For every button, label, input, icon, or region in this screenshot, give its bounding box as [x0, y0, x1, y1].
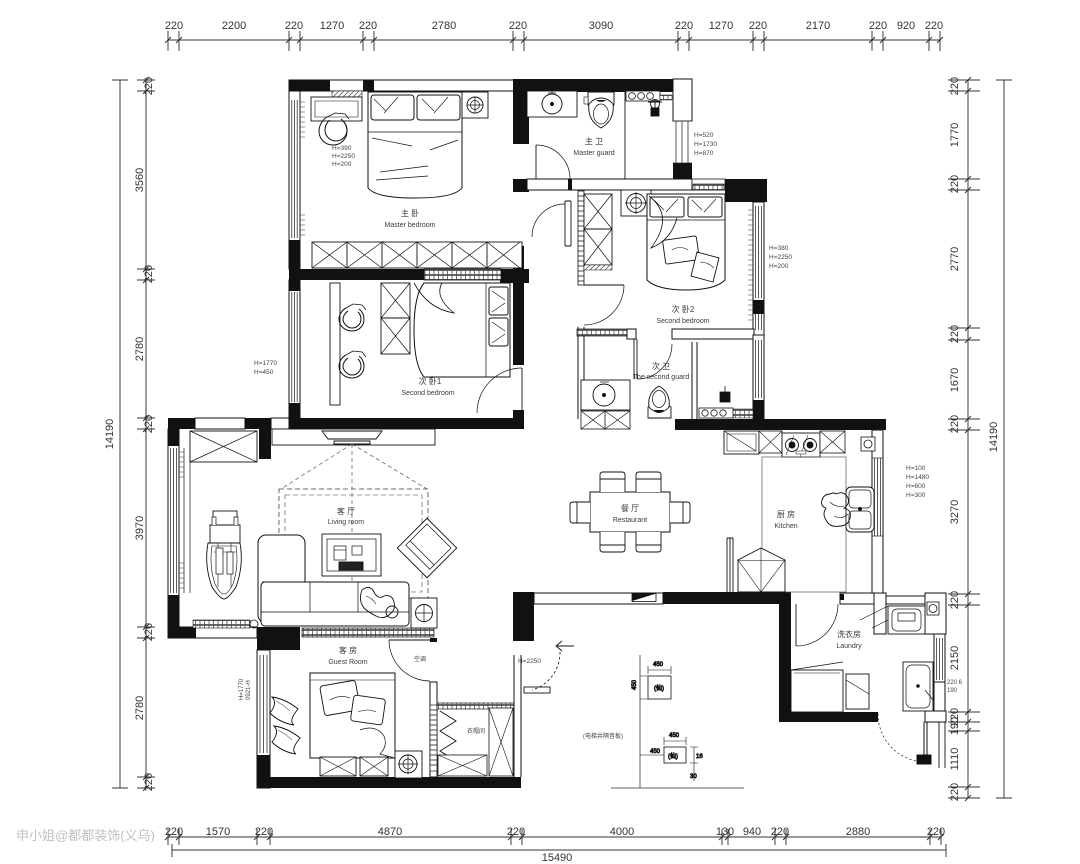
svg-text:Kitchen: Kitchen — [774, 523, 797, 530]
svg-text:220: 220 — [949, 77, 961, 95]
svg-text:450: 450 — [653, 662, 664, 668]
svg-text:220: 220 — [165, 826, 183, 838]
svg-text:220: 220 — [949, 783, 961, 801]
svg-text:H=2250: H=2250 — [769, 254, 792, 261]
svg-text:Second bedroom: Second bedroom — [401, 390, 454, 397]
svg-text:Master bedroom: Master bedroom — [385, 222, 436, 229]
svg-text:220: 220 — [165, 20, 183, 32]
svg-text:1770: 1770 — [949, 123, 961, 147]
svg-text:The second guard: The second guard — [633, 374, 690, 381]
svg-text:(仙): (仙) — [668, 752, 678, 760]
svg-text:220: 220 — [143, 77, 155, 95]
svg-text:2150: 2150 — [949, 646, 961, 670]
svg-text:(仙): (仙) — [654, 684, 664, 692]
svg-text:客 厅: 客 厅 — [337, 506, 355, 516]
svg-text:220: 220 — [675, 20, 693, 32]
svg-text:2780: 2780 — [134, 696, 146, 720]
svg-text:130: 130 — [716, 826, 734, 838]
svg-text:次 卧2: 次 卧2 — [672, 304, 695, 314]
svg-text:H=200: H=200 — [332, 161, 352, 168]
svg-text:申小姐@都都装饰(义乌): 申小姐@都都装饰(义乌) — [16, 828, 155, 843]
svg-text:衣帽间: 衣帽间 — [467, 727, 485, 735]
svg-text:16: 16 — [696, 754, 703, 760]
svg-text:次 卫: 次 卫 — [652, 361, 670, 371]
svg-text:1570: 1570 — [206, 826, 230, 838]
svg-text:H=1770: H=1770 — [254, 360, 277, 367]
svg-text:次 卧1: 次 卧1 — [419, 376, 442, 386]
svg-text:220: 220 — [925, 20, 943, 32]
svg-text:餐 厅: 餐 厅 — [621, 504, 639, 513]
svg-text:220: 220 — [927, 826, 945, 838]
svg-text:14190: 14190 — [988, 422, 1000, 453]
svg-text:H=390: H=390 — [332, 145, 352, 152]
svg-text:2200: 2200 — [222, 20, 246, 32]
svg-text:(电梯井隔音板): (电梯井隔音板) — [583, 732, 623, 740]
svg-text:220: 220 — [143, 415, 155, 433]
svg-text:4000: 4000 — [610, 826, 634, 838]
svg-text:H=300: H=300 — [906, 492, 926, 499]
svg-text:15490: 15490 — [542, 852, 573, 864]
svg-text:1270: 1270 — [320, 20, 344, 32]
svg-text:H=870: H=870 — [694, 150, 714, 157]
svg-text:920: 920 — [897, 20, 915, 32]
svg-text:Second bedroom: Second bedroom — [656, 318, 709, 325]
svg-text:厨 房: 厨 房 — [777, 509, 795, 519]
svg-text:450: 450 — [632, 679, 638, 690]
svg-text:3560: 3560 — [134, 168, 146, 192]
svg-text:220: 220 — [255, 826, 273, 838]
svg-text:H=2250: H=2250 — [518, 658, 541, 665]
svg-text:Restaurant: Restaurant — [613, 517, 647, 524]
svg-text:450: 450 — [669, 733, 680, 739]
svg-text:H=1730: H=1730 — [694, 141, 717, 148]
svg-text:3270: 3270 — [949, 500, 961, 524]
svg-text:1110: 1110 — [949, 748, 961, 771]
svg-text:220: 220 — [949, 591, 961, 609]
svg-text:220 6: 220 6 — [947, 680, 963, 686]
svg-text:220: 220 — [771, 826, 789, 838]
svg-text:Laundry: Laundry — [836, 643, 862, 650]
svg-text:主 卫: 主 卫 — [585, 136, 603, 146]
svg-text:450: 450 — [650, 749, 661, 755]
svg-text:220: 220 — [509, 20, 527, 32]
svg-text:H=2250: H=2250 — [332, 153, 355, 160]
svg-text:H=1480: H=1480 — [906, 474, 929, 481]
svg-text:H=520: H=520 — [694, 132, 714, 139]
svg-text:2780: 2780 — [134, 337, 146, 361]
svg-text:220: 220 — [143, 265, 155, 283]
svg-text:220: 220 — [285, 20, 303, 32]
svg-text:2780: 2780 — [432, 20, 456, 32]
svg-text:220: 220 — [507, 826, 525, 838]
svg-text:H=600: H=600 — [906, 483, 926, 490]
svg-text:客 房: 客 房 — [339, 645, 357, 655]
svg-text:14190: 14190 — [104, 419, 116, 450]
svg-text:220: 220 — [143, 623, 155, 641]
svg-text:Guest Room: Guest Room — [328, 659, 367, 666]
svg-text:190: 190 — [949, 717, 961, 735]
svg-text:主 卧: 主 卧 — [401, 208, 419, 218]
svg-text:190: 190 — [947, 688, 958, 694]
svg-text:H=1770: H=1770 — [239, 678, 245, 700]
svg-text:3090: 3090 — [589, 20, 613, 32]
svg-text:220: 220 — [949, 325, 961, 343]
svg-text:2880: 2880 — [846, 826, 870, 838]
svg-text:4870: 4870 — [378, 826, 402, 838]
svg-text:2770: 2770 — [949, 247, 961, 271]
svg-text:H=100: H=100 — [906, 465, 926, 472]
svg-text:220: 220 — [949, 175, 961, 193]
svg-text:220: 220 — [869, 20, 887, 32]
svg-text:H=450: H=450 — [254, 369, 274, 376]
svg-text:3970: 3970 — [134, 516, 146, 540]
svg-text:220: 220 — [749, 20, 767, 32]
svg-text:H=380: H=380 — [769, 245, 789, 252]
svg-text:220: 220 — [359, 20, 377, 32]
svg-text:940: 940 — [743, 826, 761, 838]
svg-text:1270: 1270 — [709, 20, 733, 32]
svg-text:洗衣房: 洗衣房 — [837, 629, 861, 639]
svg-text:空调: 空调 — [414, 655, 426, 663]
svg-text:Living room: Living room — [328, 519, 364, 526]
svg-text:2170: 2170 — [806, 20, 830, 32]
svg-text:220: 220 — [949, 415, 961, 433]
svg-text:Master guard: Master guard — [573, 150, 614, 157]
svg-text:220: 220 — [143, 773, 155, 791]
svg-text:0921-H: 0921-H — [246, 680, 252, 700]
svg-text:1670: 1670 — [949, 368, 961, 392]
svg-text:H=200: H=200 — [769, 263, 789, 270]
svg-text:30: 30 — [690, 774, 697, 780]
